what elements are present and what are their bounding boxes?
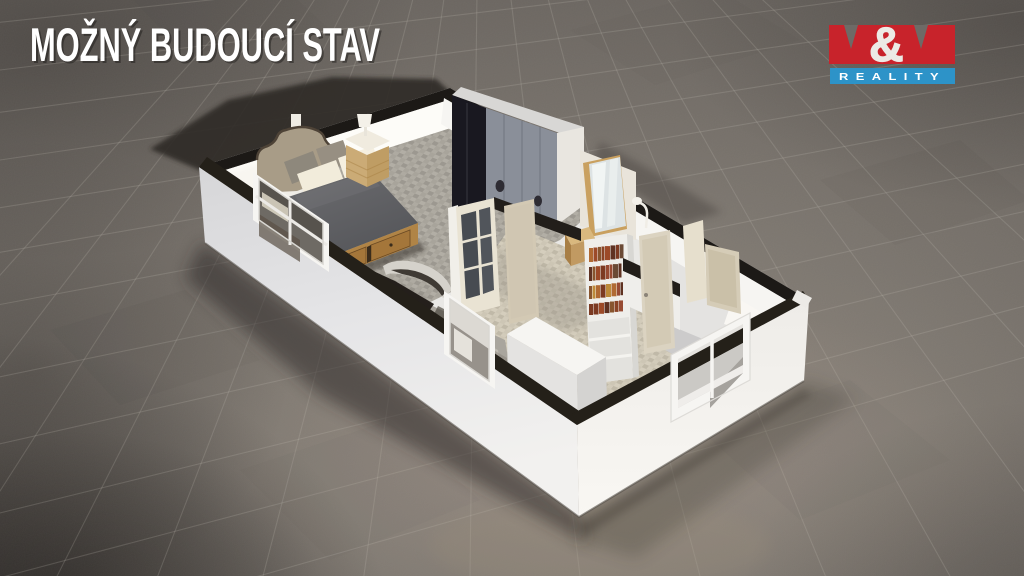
svg-text:REALITY: REALITY <box>839 71 946 83</box>
svg-text:MOŽNÝ BUDOUCÍ STAV: MOŽNÝ BUDOUCÍ STAV <box>30 18 380 71</box>
svg-text:&: & <box>869 19 904 72</box>
